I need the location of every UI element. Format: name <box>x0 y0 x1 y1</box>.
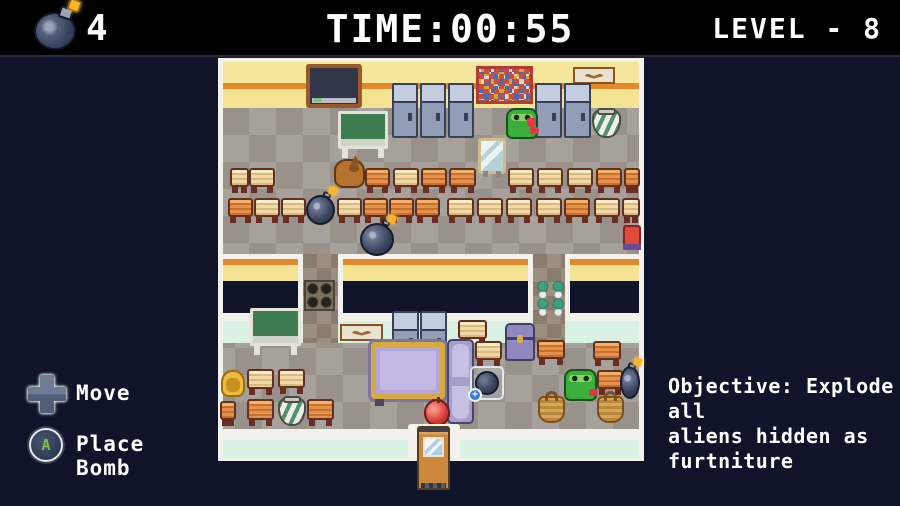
pot-grid <box>304 280 335 311</box>
locker <box>564 83 591 138</box>
desk-orange <box>220 401 236 426</box>
desk-light <box>567 168 593 193</box>
entity-layer <box>218 58 644 461</box>
alien <box>564 369 597 401</box>
desk-light <box>281 198 306 223</box>
desk-orange <box>365 168 390 193</box>
objective-line: furtniture <box>668 449 898 474</box>
desk-light <box>447 198 474 223</box>
purple-table <box>368 339 448 402</box>
pot <box>278 397 306 426</box>
locker <box>448 83 474 138</box>
desk-light <box>249 168 275 193</box>
bomb <box>620 366 640 399</box>
desk-light <box>247 369 274 395</box>
desk-orange <box>624 168 640 193</box>
desk-light <box>230 168 249 193</box>
desk-light <box>254 198 280 223</box>
desk-light <box>278 369 305 394</box>
desk-orange <box>596 168 622 193</box>
desk-orange <box>247 399 274 426</box>
game-map[interactable] <box>218 58 644 461</box>
desk-light <box>506 198 532 223</box>
desk-light <box>475 341 502 366</box>
a-button-icon: A <box>29 428 63 462</box>
dpad-icon <box>28 375 66 413</box>
desk-orange <box>307 399 334 426</box>
bomb-pickup <box>470 366 504 400</box>
apple <box>424 399 450 426</box>
basket <box>597 396 624 423</box>
bomb <box>306 195 335 225</box>
desk-orange <box>449 168 476 193</box>
pot <box>592 109 621 138</box>
desk-orange <box>415 198 440 223</box>
locker <box>392 83 418 138</box>
level-display: LEVEL - 8 <box>712 0 882 55</box>
a-button-letter: A <box>41 436 50 454</box>
chest <box>505 323 535 361</box>
desk-light <box>536 198 562 223</box>
objective-line: aliens hidden as <box>668 424 898 449</box>
bomb <box>360 223 394 256</box>
basket <box>538 396 565 423</box>
objective-text: Objective: Explode all aliens hidden as … <box>668 374 898 474</box>
dog <box>334 159 365 188</box>
greenboard <box>338 111 388 158</box>
yellow-bed <box>221 370 245 397</box>
objective-line: Objective: Explode all <box>668 374 898 424</box>
desk-orange <box>564 198 590 223</box>
hud-bar: 4 TIME:00:55 LEVEL - 8 <box>0 0 900 57</box>
desk-orange <box>421 168 447 193</box>
door <box>417 426 450 490</box>
sign <box>573 67 615 84</box>
desk-orange <box>593 341 621 366</box>
desk-light <box>622 198 640 223</box>
desk-light <box>393 168 419 193</box>
desk-orange <box>228 198 253 223</box>
mirror <box>478 138 506 174</box>
plant-grid <box>535 281 566 316</box>
desk-light <box>508 168 534 193</box>
desk-light <box>337 198 362 223</box>
locker <box>420 83 446 138</box>
move-label: Move <box>76 381 131 405</box>
place-bomb-label: Place Bomb <box>76 432 144 480</box>
red-chair <box>623 225 641 250</box>
locker <box>535 83 562 138</box>
poster <box>476 66 533 104</box>
desk-orange <box>537 340 565 365</box>
desk-light <box>594 198 620 223</box>
greenboard <box>250 308 301 355</box>
blackboard <box>306 64 362 108</box>
heart <box>527 118 536 127</box>
desk-light <box>537 168 563 193</box>
desk-light <box>477 198 503 223</box>
